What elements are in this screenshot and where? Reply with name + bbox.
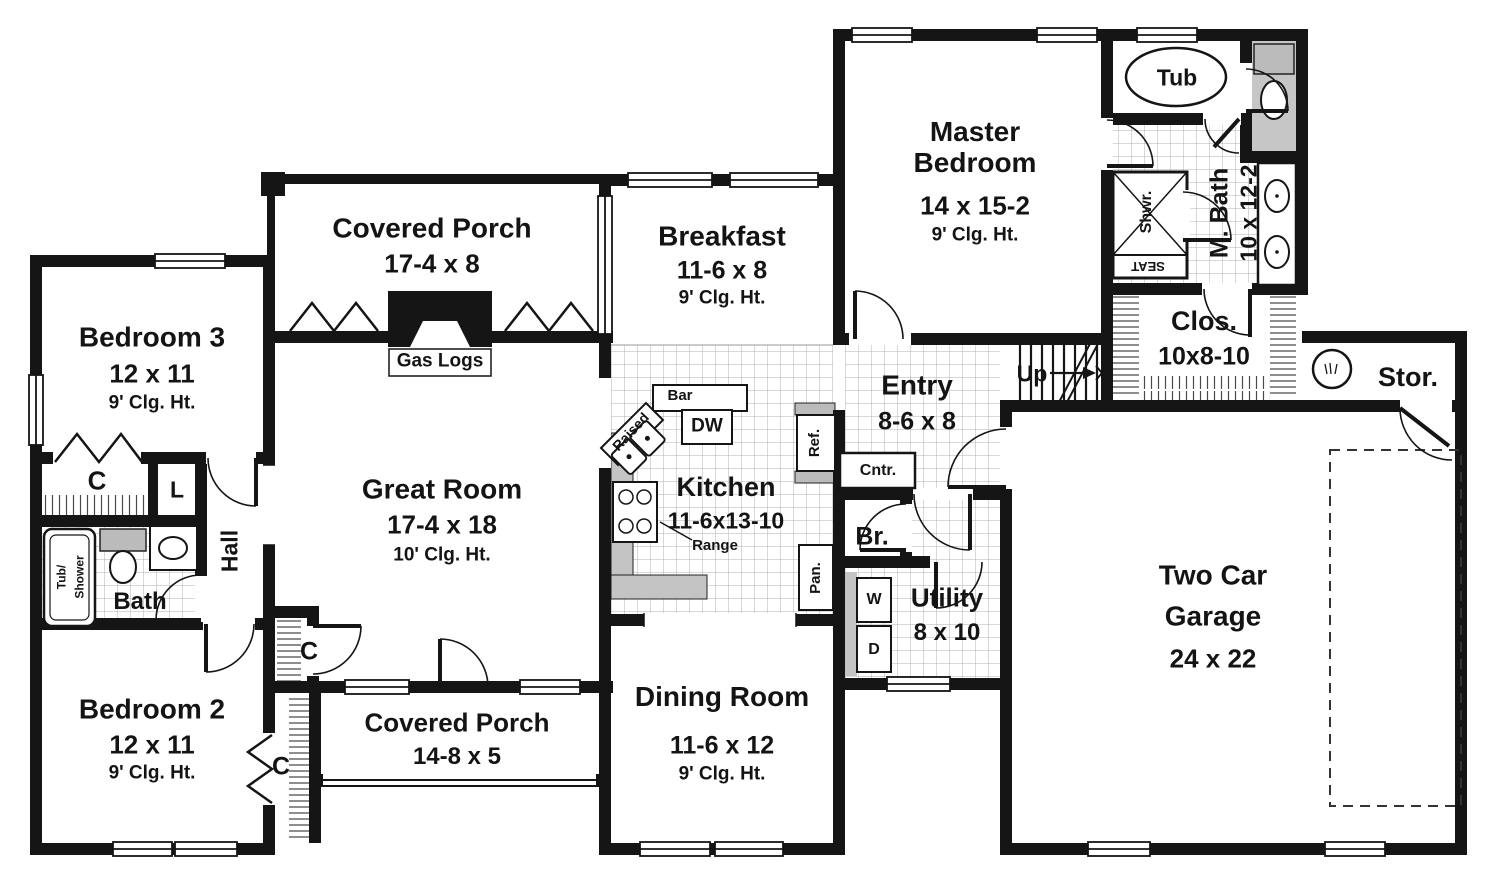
- porch-edge: [311, 774, 608, 786]
- great-room-dim: 17-4 x 18: [387, 511, 497, 540]
- counter-label: Cntr.: [860, 462, 896, 480]
- porch-front-name: Covered Porch: [365, 709, 550, 738]
- toilet-hall-bath: [110, 551, 136, 583]
- bath-name: Bath: [113, 589, 166, 615]
- garage-dim: 24 x 22: [1170, 645, 1257, 674]
- master-bath-name: M. Bath: [1206, 168, 1234, 258]
- hall-name: Hall: [217, 530, 242, 572]
- closet-c-great-room: C: [300, 638, 318, 666]
- kitchen-dim: 11-6x13-10: [668, 508, 784, 533]
- dining-room-clg: 9' Clg. Ht.: [679, 765, 766, 786]
- bedroom2-name: Bedroom 2: [79, 695, 225, 726]
- utility-name: Utility: [911, 584, 983, 613]
- stairs-up-label: Up: [1017, 361, 1048, 386]
- great-room-clg: 10' Clg. Ht.: [393, 546, 490, 567]
- master-bath-dim: 10 x 12-2: [1236, 164, 1261, 261]
- master-bedroom-name: Master Bedroom: [868, 117, 1083, 179]
- bedroom2-clg: 9' Clg. Ht.: [109, 764, 196, 785]
- breakfast-name: Breakfast: [658, 222, 786, 253]
- bedroom3-dim: 12 x 11: [109, 360, 194, 389]
- tub-label: Tub: [1157, 65, 1197, 90]
- breakfast-clg: 9' Clg. Ht.: [679, 289, 766, 310]
- porch-front-dim: 14-8 x 5: [413, 744, 501, 770]
- dishwasher-label: DW: [691, 417, 723, 438]
- porch-rear-dim: 17-4 x 8: [384, 250, 479, 279]
- closet-c-bedroom3: C: [88, 467, 107, 496]
- hall-bath-tub: [44, 529, 95, 626]
- master-bedroom-clg: 9' Clg. Ht.: [932, 226, 1019, 247]
- pantry-label: Pan.: [808, 562, 825, 594]
- tub-shower-label-1: Tub/: [55, 565, 68, 589]
- closet-master-dim: 10x8-10: [1158, 343, 1250, 371]
- seat-label: SEAT: [1131, 259, 1165, 273]
- floor-plan: Covered Porch 17-4 x 8 Breakfast 11-6 x …: [0, 0, 1500, 883]
- dining-room-name: Dining Room: [635, 678, 810, 716]
- porch-rear-name: Covered Porch: [332, 214, 531, 245]
- great-room-name: Great Room: [362, 475, 522, 506]
- bar-label: Bar: [667, 388, 692, 405]
- closet-master-name: Clos.: [1171, 307, 1237, 337]
- bedroom3-name: Bedroom 3: [79, 323, 225, 354]
- utility-dim: 8 x 10: [914, 620, 981, 646]
- closet-c-bedroom2: C: [272, 753, 290, 781]
- master-vanity: [1258, 163, 1296, 285]
- dining-room-dim: 11-6 x 12: [670, 732, 774, 760]
- entry-name: Entry: [881, 371, 953, 402]
- refrigerator-label: Ref.: [807, 429, 824, 457]
- tub-shower-label-2: Shower: [73, 555, 86, 598]
- toilet-master: [1261, 81, 1287, 119]
- breakfast-dim: 11-6 x 8: [677, 257, 767, 285]
- kitchen-name: Kitchen: [676, 473, 775, 503]
- dryer-label: D: [868, 641, 880, 659]
- washer-label: W: [866, 591, 881, 609]
- shower-label: Shwr.: [1138, 191, 1156, 234]
- garage-dashed-outline: [1330, 450, 1461, 806]
- water-heater: [1313, 350, 1351, 388]
- master-bedroom-dim: 14 x 15-2: [920, 192, 1030, 221]
- bedroom2-dim: 12 x 11: [109, 731, 194, 760]
- garage-name: Two Car Garage: [1133, 555, 1293, 636]
- bedroom3-clg: 9' Clg. Ht.: [109, 394, 196, 415]
- range-label: Range: [692, 538, 738, 555]
- hall-bath-vanity: [150, 526, 197, 570]
- entry-dim: 8-6 x 8: [878, 408, 956, 436]
- gas-logs-label: Gas Logs: [397, 352, 484, 373]
- linen-label: L: [170, 477, 184, 502]
- half-bath-name: Br.: [855, 523, 888, 551]
- storage-name: Stor.: [1378, 363, 1438, 393]
